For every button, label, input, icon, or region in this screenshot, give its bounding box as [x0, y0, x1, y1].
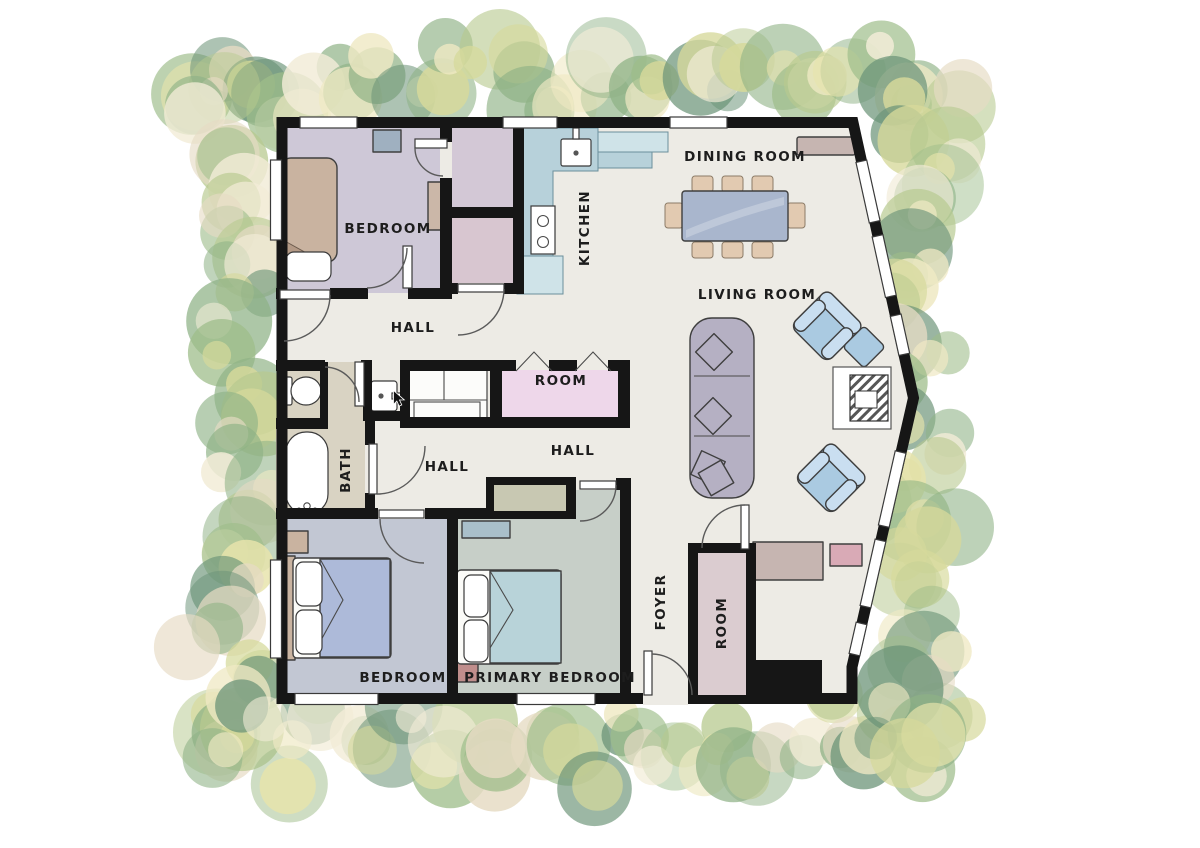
cabinet-icon	[409, 370, 487, 422]
label-hall-right: HALL	[551, 443, 596, 459]
window	[300, 117, 357, 128]
label-foyer: FOYER	[653, 574, 669, 631]
door	[280, 290, 330, 299]
stove-icon	[531, 206, 555, 254]
floor-plan-page: BEDROOM KITCHEN DINING ROOM LIVING ROOM …	[0, 0, 1200, 848]
window	[503, 117, 557, 128]
label-dining-room: DINING ROOM	[684, 149, 806, 165]
door	[379, 510, 424, 518]
dresser-icon	[373, 130, 401, 152]
hall-closet	[494, 485, 566, 511]
label-primary-bedroom: PRIMARY BEDROOM	[464, 670, 636, 686]
label-room-bottom: ROOM	[714, 597, 730, 649]
fireplace-icon	[833, 367, 891, 429]
door	[741, 505, 749, 549]
door	[369, 444, 377, 494]
floor-plan-canvas: BEDROOM KITCHEN DINING ROOM LIVING ROOM …	[0, 0, 1200, 848]
label-room-middle: ROOM	[535, 373, 587, 389]
label-bedroom-bottom: BEDROOM	[359, 670, 446, 686]
entry-door	[644, 651, 652, 695]
closet-1-floor	[452, 123, 513, 207]
window	[517, 694, 595, 705]
toilet-icon	[283, 377, 321, 405]
label-bath: BATH	[338, 447, 354, 493]
closet-2-floor	[452, 218, 513, 283]
sofa-icon	[690, 318, 754, 498]
bathtub-icon	[286, 432, 328, 514]
label-bedroom-top: BEDROOM	[344, 221, 431, 237]
window	[670, 117, 727, 128]
door	[403, 246, 412, 288]
label-kitchen: KITCHEN	[577, 190, 593, 266]
side-table-icon	[830, 544, 862, 566]
door	[458, 284, 504, 292]
door	[415, 139, 447, 148]
label-living-room: LIVING ROOM	[698, 287, 816, 303]
label-hall-left: HALL	[425, 459, 470, 475]
door	[580, 481, 616, 489]
window	[295, 694, 378, 705]
sideboard-icon-2	[753, 542, 823, 580]
label-hall-upper: HALL	[391, 320, 436, 336]
bed-icon	[281, 158, 337, 281]
window	[271, 160, 282, 240]
window	[271, 560, 282, 658]
